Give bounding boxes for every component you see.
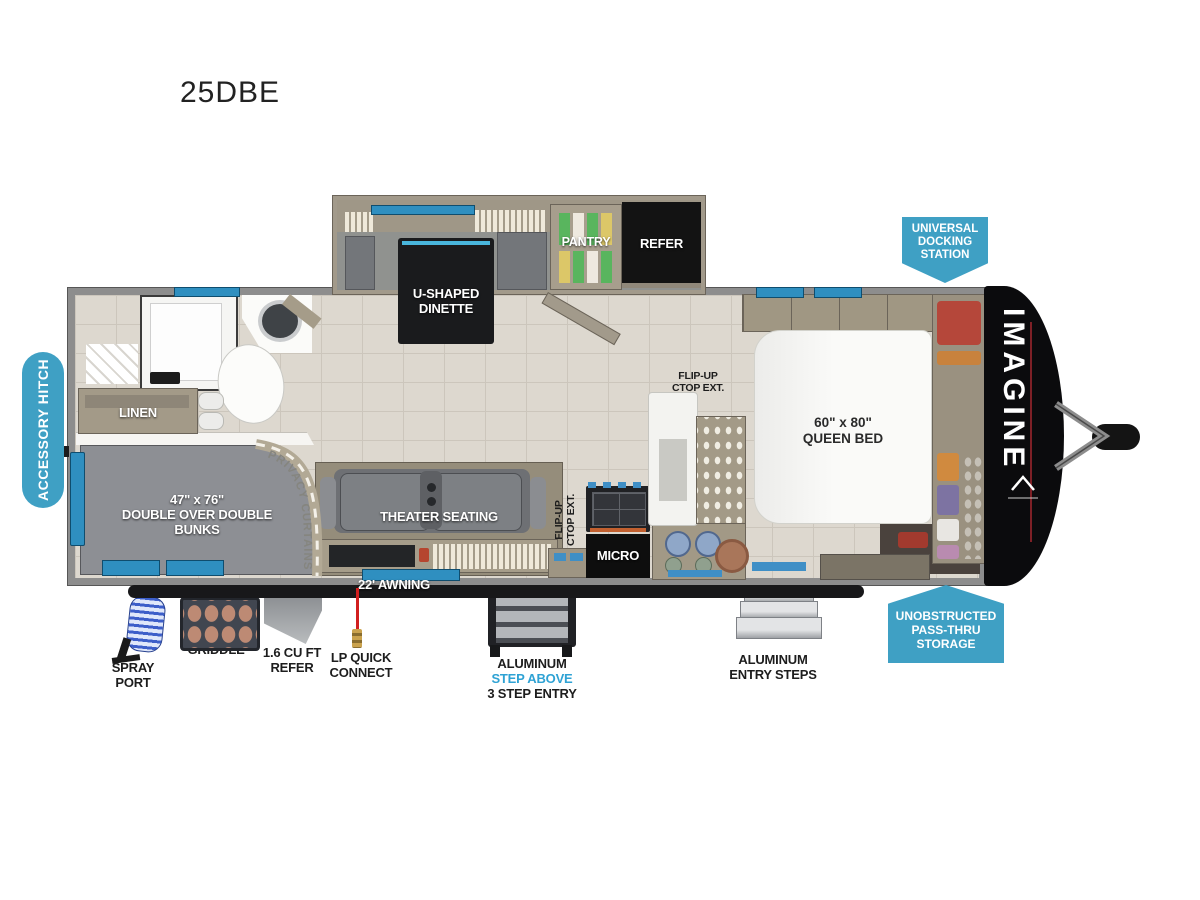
media-screen <box>329 545 415 567</box>
stove-trim <box>590 528 646 532</box>
microwave: MICRO <box>586 534 650 578</box>
theater-slideout: THEATER SEATING <box>315 462 563 576</box>
window <box>174 287 240 297</box>
spray-port-hose <box>125 594 167 653</box>
passthru-badge-line3: STORAGE <box>888 637 1004 651</box>
table-edge <box>402 241 490 245</box>
step-above-steps <box>488 591 576 647</box>
lp-quick-connect-fitting <box>352 629 362 648</box>
queen-bed-size: 60" x 80" <box>755 415 931 431</box>
dinette-bench-left <box>345 236 375 290</box>
dish-cabinet <box>696 416 746 524</box>
page-title: 25DBE <box>180 76 280 110</box>
floor-mat <box>668 570 722 577</box>
accessory-hitch-badge: ACCESSORY HITCH <box>22 352 64 508</box>
stove-knobs <box>588 482 646 488</box>
stored-gear <box>937 351 981 365</box>
linen-label: LINEN <box>79 405 197 420</box>
passthru-badge-line2: PASS-THRU <box>888 623 1004 637</box>
step-leg <box>490 645 500 657</box>
kitchen-island <box>648 392 698 526</box>
pantry-item <box>601 251 612 283</box>
docking-badge-line2: DOCKING <box>902 236 988 249</box>
entry-steps-label-line2: ENTRY STEPS <box>723 667 823 682</box>
flip-up-ctop-label-v-line2: CTOP EXT. <box>565 475 577 565</box>
towel <box>198 392 224 410</box>
pantry-item <box>573 251 584 283</box>
bed-foot-dresser <box>820 554 930 580</box>
wardrobe <box>932 294 988 564</box>
stored-gear <box>937 301 981 345</box>
front-cap: IMAGINE <box>984 286 1064 586</box>
shelf-wedges <box>86 344 138 384</box>
island-inset <box>659 439 687 501</box>
shower-fixture <box>150 372 180 384</box>
step-leg <box>562 645 572 657</box>
pantry-cabinet: PANTRY <box>550 204 622 290</box>
flip-up-ctop-label-h-line2: CTOP EXT. <box>650 382 746 394</box>
entertainment-cabinet <box>320 539 558 573</box>
lp-label-line1: LP QUICK <box>318 650 404 665</box>
towel <box>198 412 224 430</box>
dinette-label-line2: DINETTE <box>398 301 494 316</box>
awning-rail <box>128 585 864 598</box>
entry-step <box>736 617 822 639</box>
queen-bed: 60" x 80" QUEEN BED <box>754 330 932 524</box>
queen-bed-label: QUEEN BED <box>755 431 931 447</box>
flip-up-ctop-label-h-line1: FLIP-UP <box>650 370 746 382</box>
window <box>70 452 85 546</box>
bunks-size: 47" x 76" <box>81 492 313 507</box>
brand-logo: IMAGINE <box>996 308 1030 558</box>
pantry-item <box>559 251 570 283</box>
window <box>166 560 224 576</box>
step-entry-label-line1: ALUMINUM <box>478 656 586 671</box>
docking-badge-line3: STATION <box>902 249 988 262</box>
lp-quick-connect-line <box>356 588 359 632</box>
window <box>814 287 862 298</box>
books <box>345 212 373 232</box>
micro-label: MICRO <box>586 548 650 563</box>
cupholder <box>427 497 436 506</box>
pantry-item <box>587 251 598 283</box>
docking-badge-line1: UNIVERSAL <box>902 223 988 236</box>
clothes <box>937 453 959 481</box>
step-entry-label-line3: 3 STEP ENTRY <box>478 686 586 701</box>
brand-accent-line <box>1030 322 1032 542</box>
bunk-beds: 47" x 76" DOUBLE OVER DOUBLE BUNKS <box>80 445 314 575</box>
step-entry-label-line2: STEP ABOVE <box>478 671 586 686</box>
bunks-label-line1: DOUBLE OVER DOUBLE <box>81 507 313 522</box>
dinette-table: U-SHAPED DINETTE <box>398 238 494 344</box>
dinette-label-line1: U-SHAPED <box>398 286 494 301</box>
clothes <box>937 485 959 515</box>
floor-mat <box>752 562 806 571</box>
entry-steps-label-line1: ALUMINUM <box>723 652 823 667</box>
media-item <box>419 548 429 562</box>
stove <box>586 486 650 532</box>
spray-port-label-line1: SPRAY <box>95 660 171 675</box>
clothes <box>937 545 959 559</box>
books <box>475 210 545 232</box>
griddle <box>180 597 260 651</box>
pantry-label: PANTRY <box>551 235 621 249</box>
dinette-slideout: PANTRY REFER <box>333 196 705 294</box>
theater-label: THEATER SEATING <box>320 509 558 524</box>
accessory-hitch-badge-label: ACCESSORY HITCH <box>35 358 51 502</box>
step-treads <box>496 595 568 643</box>
sink-bowl <box>665 531 691 557</box>
bunks-label-line2: BUNKS <box>81 522 313 537</box>
window <box>371 205 475 215</box>
passthru-badge-line1: UNOBSTRUCTED <box>888 609 1004 623</box>
floorplan-canvas: 25DBE PANTRY REFER <box>0 0 1200 900</box>
spray-port-label-line2: PORT <box>95 675 171 690</box>
lp-label-line2: CONNECT <box>318 665 404 680</box>
refrigerator: REFER <box>622 202 701 288</box>
books <box>433 544 553 569</box>
linen-cabinet: LINEN <box>78 388 198 434</box>
clothes <box>937 519 959 541</box>
dinette-bench-right <box>497 232 547 290</box>
shoe-storage <box>963 455 983 559</box>
shower-pan <box>150 303 222 381</box>
flip-up-ctop-label-v-line1: FLIP-UP <box>553 475 565 565</box>
refer-base <box>622 283 701 288</box>
exterior-refer-door <box>264 590 322 644</box>
awning-label: 22' AWNING <box>336 577 452 592</box>
burners <box>592 492 646 526</box>
window <box>756 287 804 298</box>
round-sink <box>715 539 749 573</box>
stored-item <box>898 532 928 548</box>
refer-label: REFER <box>622 236 701 251</box>
window <box>102 560 160 576</box>
hitch-coupler <box>1092 424 1140 450</box>
overhead-cabinets <box>742 294 934 332</box>
cupholder <box>427 483 436 492</box>
